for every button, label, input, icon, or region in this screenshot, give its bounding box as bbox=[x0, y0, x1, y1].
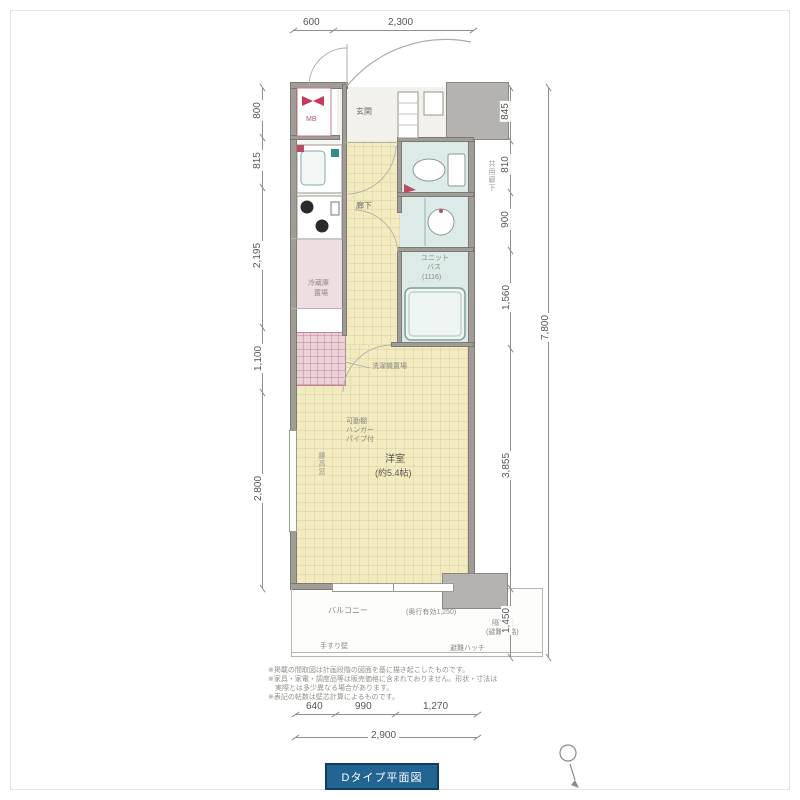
dimension-label: 7,800 bbox=[540, 313, 551, 342]
refrigerator-label-2: 置場 bbox=[314, 290, 328, 298]
unit-bath-label-2: バス bbox=[427, 264, 441, 272]
western-room-label: 洋室 bbox=[385, 450, 405, 465]
kitchen-sink bbox=[301, 151, 325, 185]
dimension-label: 2,900 bbox=[368, 730, 399, 741]
kitchen-red-mark bbox=[297, 145, 304, 152]
dimension-label: 1,560 bbox=[501, 283, 512, 312]
dimension-label: 800 bbox=[252, 100, 263, 121]
unit-bath-label-1: ユニット bbox=[421, 255, 449, 263]
entrance-subdoor-arc bbox=[309, 48, 347, 86]
washer-leader-line bbox=[345, 362, 370, 368]
dimension-label: 1,100 bbox=[253, 344, 264, 373]
window-note: 腰高窓 bbox=[316, 452, 326, 476]
dimension-label: 1,270 bbox=[420, 701, 451, 712]
dimension-label: 900 bbox=[500, 209, 511, 230]
closet-note-1: 可動棚 bbox=[346, 418, 367, 426]
dimension-label: 810 bbox=[500, 154, 511, 175]
entrance-cabinet bbox=[424, 92, 443, 115]
hatch-note: 避難ハッチ bbox=[450, 645, 485, 653]
dimension-label: 815 bbox=[252, 150, 263, 171]
corridor-note: 共用廊下 bbox=[486, 160, 496, 192]
dimension-label: 2,195 bbox=[252, 241, 263, 270]
stove-burner-1 bbox=[301, 201, 314, 214]
dimension-label: 845 bbox=[500, 101, 511, 122]
dim-line-bottom bbox=[295, 714, 477, 715]
toilet-paper-holder-icon bbox=[404, 184, 416, 193]
shoe-cabinet bbox=[398, 92, 418, 138]
balcony-depth-note: (奥行有効1,250) bbox=[406, 609, 456, 617]
closet-note-3: パイプ付 bbox=[346, 436, 374, 444]
plan-type-button[interactable]: Dタイプ平面図 bbox=[325, 763, 439, 790]
entrance-door-arc bbox=[347, 39, 471, 86]
dimension-label: 640 bbox=[303, 701, 326, 712]
dim-line-top bbox=[293, 30, 473, 31]
north-arrow-stem bbox=[570, 764, 575, 780]
western-room-size: (約5.4帖) bbox=[375, 466, 412, 479]
washbasin-faucet bbox=[439, 209, 443, 213]
north-arrow-icon bbox=[560, 745, 576, 761]
note-line: ※家具・家電・調度品等は販売価格に含まれておりません。形状・寸法は bbox=[268, 675, 497, 684]
dimension-label: 990 bbox=[352, 701, 375, 712]
closet-note-2: ハンガー bbox=[346, 427, 374, 435]
floorplan-page: 玄関 MB 廊下 冷蔵庫 置場 ユニット バス (1116) 洋室 (約5.4帖… bbox=[0, 0, 800, 800]
note-line: ※掲載の間取図は計画段階の図面を基に描き起こしたものです。 bbox=[268, 666, 497, 675]
dimension-label: 600 bbox=[300, 17, 323, 28]
note-line: 実際とは多少異なる場合があります。 bbox=[268, 684, 497, 693]
toilet-tank bbox=[448, 154, 465, 186]
handrail-note: 手すり壁 bbox=[320, 643, 348, 651]
hallway-door-arc bbox=[348, 146, 396, 194]
dimension-label: 3,855 bbox=[501, 451, 512, 480]
north-arrow-head bbox=[571, 780, 579, 788]
dim-line-right-outer bbox=[548, 87, 549, 658]
refrigerator-label-1: 冷蔵庫 bbox=[308, 280, 329, 288]
toilet-bowl bbox=[413, 159, 445, 181]
meter-box bbox=[297, 88, 331, 136]
dimension-label: 2,800 bbox=[253, 474, 264, 503]
unit-bath-size: (1116) bbox=[422, 274, 441, 282]
kitchen-teal-mark bbox=[331, 149, 339, 157]
meter-box-label: MB bbox=[306, 116, 317, 124]
balcony-label: バルコニー bbox=[328, 605, 368, 616]
dimension-label: 2,300 bbox=[385, 17, 416, 28]
dimension-label: 1,450 bbox=[501, 606, 512, 635]
hallway-label: 廊下 bbox=[356, 200, 372, 211]
note-line: ※表記の帖数は壁芯計算によるものです。 bbox=[268, 693, 497, 702]
disclaimer-notes: ※掲載の間取図は計画段階の図面を基に描き起こしたものです。 ※家具・家電・調度品… bbox=[268, 666, 497, 702]
bathtub bbox=[405, 288, 465, 340]
washbasin-door-arc bbox=[355, 210, 398, 252]
washer-note: 洗濯機置場 bbox=[372, 363, 407, 371]
stove-burner-2 bbox=[316, 220, 329, 233]
entrance-label: 玄関 bbox=[356, 106, 372, 117]
